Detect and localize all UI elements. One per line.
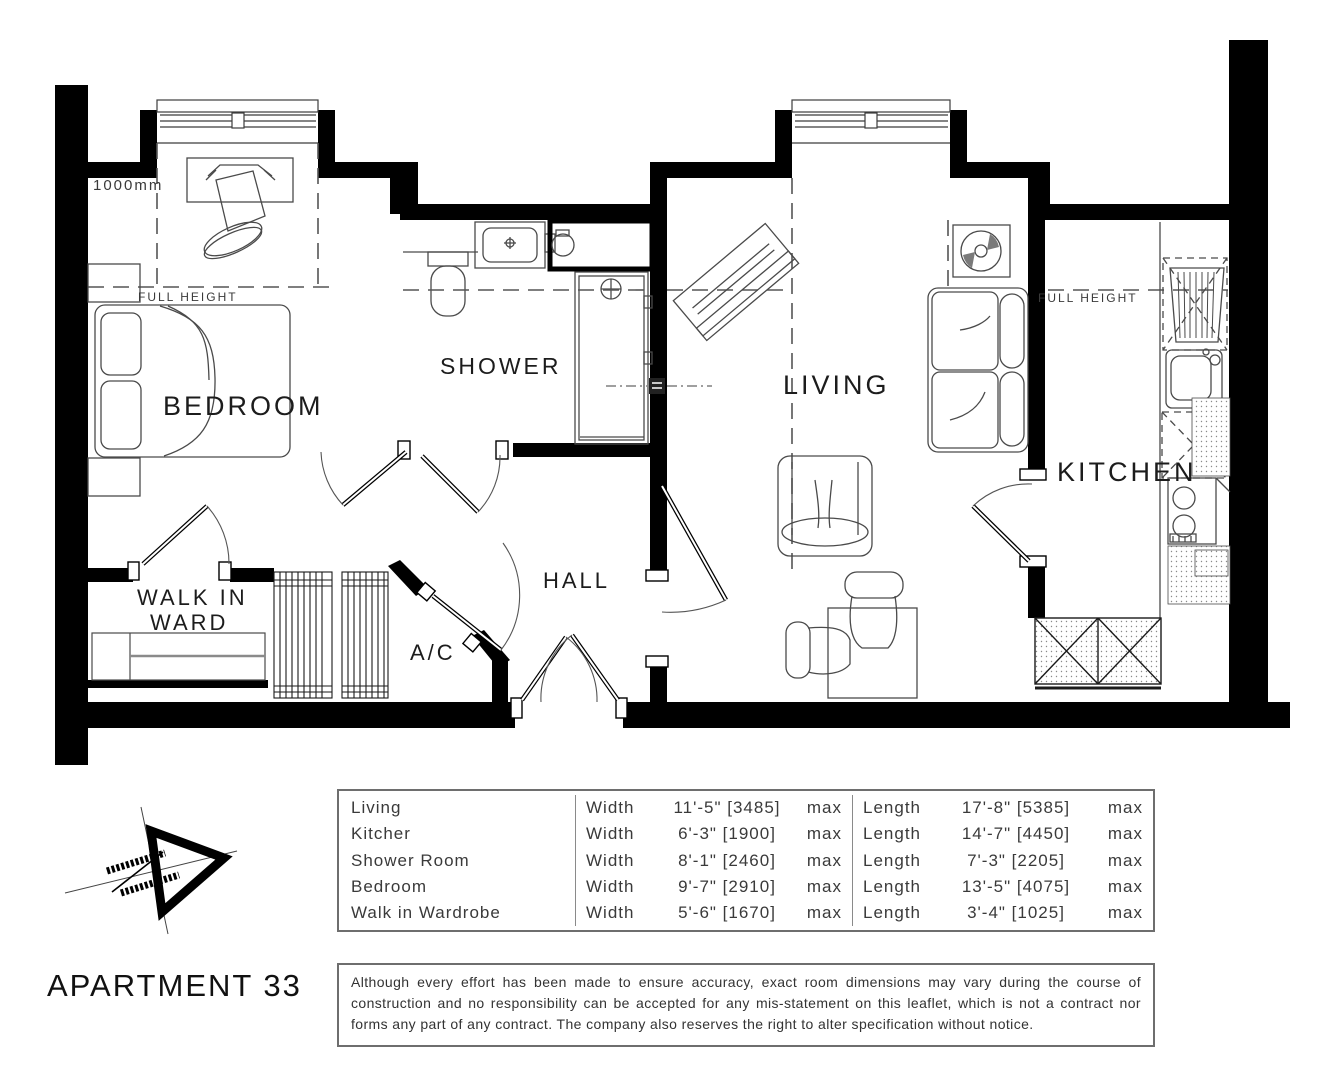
hall-label: HALL (543, 568, 610, 593)
dimensions-table: Living Width11'-5" [3485]max Length17'-8… (337, 789, 1155, 932)
length-label: Length (863, 798, 933, 818)
max-label: max (798, 851, 842, 871)
width-value: 9'-7" [2910] (656, 877, 798, 897)
room-name: Bedroom (339, 877, 575, 897)
length-value: 17'-8" [5385] (933, 798, 1099, 818)
width-label: Width (586, 798, 656, 818)
max-label: max (1099, 798, 1143, 818)
width-label: Width (586, 851, 656, 871)
dim-1000mm-label: 1000mm (93, 177, 163, 194)
room-name: Living (339, 798, 575, 818)
length-label: Length (863, 824, 933, 844)
width-value: 8'-1" [2460] (656, 851, 798, 871)
shower-label: SHOWER (440, 353, 562, 379)
width-value: 5'-6" [1670] (656, 903, 798, 923)
living-window (792, 100, 950, 143)
bedroom-label: BEDROOM (163, 391, 324, 421)
length-value: 14'-7" [4450] (933, 824, 1099, 844)
slatted-cupboard (274, 572, 388, 698)
kitchen-worktops (1035, 398, 1230, 688)
full-height-kitchen-label: FULL HEIGHT (1038, 291, 1138, 305)
length-label: Length (863, 877, 933, 897)
max-label: max (798, 798, 842, 818)
table-row: Bedroom Width9'-7" [2910]max Length13'-5… (339, 874, 1153, 900)
max-label: max (798, 877, 842, 897)
room-name: Shower Room (339, 851, 575, 871)
walk-in-ward-label-1: WALK IN (137, 585, 248, 610)
width-label: Width (586, 903, 656, 923)
room-name: Kitcher (339, 824, 575, 844)
table-row: Living Width11'-5" [3485]max Length17'-8… (339, 795, 1153, 821)
table-row: Walk in Wardrobe Width5'-6" [1670]max Le… (339, 900, 1153, 926)
living-furniture (673, 224, 1028, 698)
width-label: Width (586, 824, 656, 844)
width-value: 11'-5" [3485] (656, 798, 798, 818)
width-label: Width (586, 877, 656, 897)
max-label: max (798, 824, 842, 844)
walk-in-ward-label-2: WARD (150, 610, 228, 635)
max-label: max (1099, 903, 1143, 923)
max-label: max (1099, 877, 1143, 897)
bedroom-window (157, 100, 318, 143)
length-label: Length (863, 903, 933, 923)
bedroom-furniture (88, 158, 293, 496)
shower-room-fixtures (403, 221, 652, 444)
kitchen-label: KITCHEN (1057, 457, 1197, 487)
wardrobe-fittings (92, 633, 265, 680)
disclaimer-text: Although every effort has been made to e… (337, 963, 1155, 1047)
ac-label: A/C (410, 640, 456, 665)
max-label: max (798, 903, 842, 923)
floor-plan-page: BEDROOM 1000mm FULL HEIGHT SHOWER (0, 0, 1329, 1080)
living-label: LIVING (783, 370, 890, 400)
vent-symbol (606, 378, 712, 394)
north-arrow-icon (65, 807, 237, 934)
length-value: 13'-5" [4075] (933, 877, 1099, 897)
room-name: Walk in Wardrobe (339, 903, 575, 923)
table-row: Shower Room Width8'-1" [2460]max Length7… (339, 847, 1153, 873)
length-value: 3'-4" [1025] (933, 903, 1099, 923)
apartment-title: APARTMENT 33 (47, 968, 302, 1004)
length-label: Length (863, 851, 933, 871)
width-value: 6'-3" [1900] (656, 824, 798, 844)
max-label: max (1099, 851, 1143, 871)
table-row: Kitcher Width6'-3" [1900]max Length14'-7… (339, 821, 1153, 847)
length-value: 7'-3" [2205] (933, 851, 1099, 871)
full-height-bedroom-label: FULL HEIGHT (138, 290, 238, 304)
max-label: max (1099, 824, 1143, 844)
